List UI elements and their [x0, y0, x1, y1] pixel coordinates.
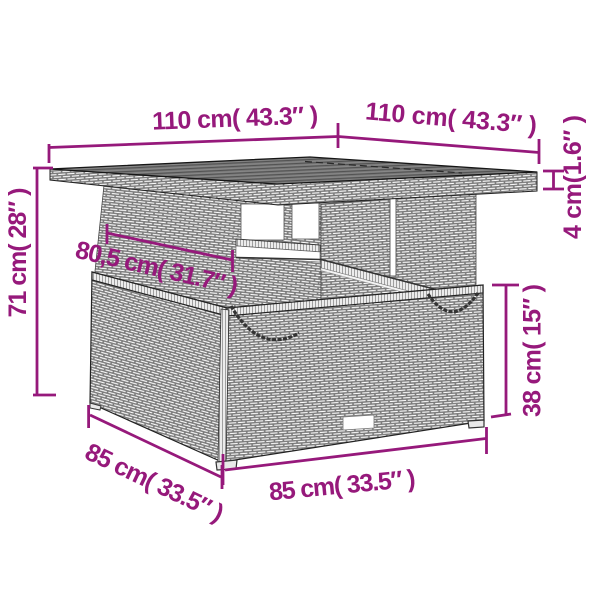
svg-text:71 cm( 28″ ): 71 cm( 28″ ): [4, 188, 32, 318]
svg-text:4 cm(1.6″ ): 4 cm(1.6″ ): [559, 115, 587, 239]
svg-text:38 cm( 15″ ): 38 cm( 15″ ): [519, 284, 547, 417]
